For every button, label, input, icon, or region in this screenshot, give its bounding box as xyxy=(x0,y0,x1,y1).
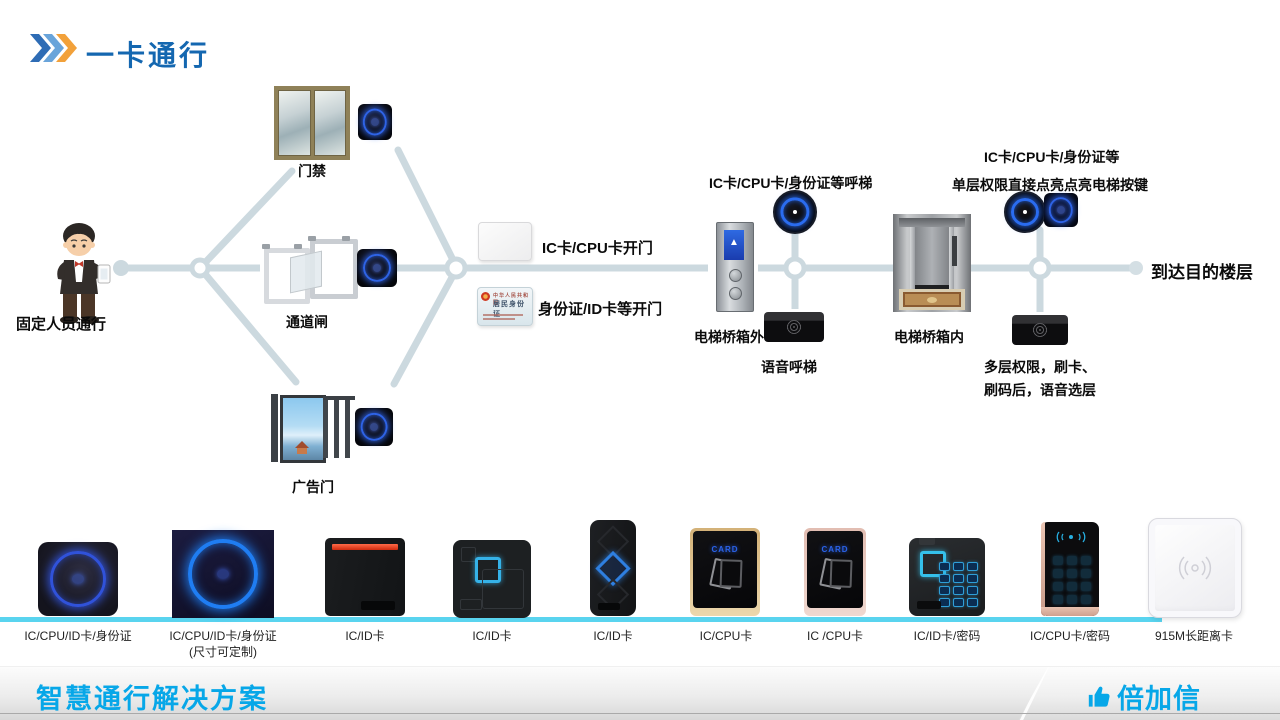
product-label: IC/CPU/ID卡/身份证 xyxy=(148,627,298,644)
card-reader-icon xyxy=(1044,193,1078,227)
ad-gate-label: 广告门 xyxy=(271,477,355,497)
footer-bar: 智慧通行解决方案 倍加信 xyxy=(0,666,1280,720)
round-card-reader-icon xyxy=(773,190,817,234)
reader-product-image: CARD xyxy=(690,528,760,616)
round-card-reader-icon xyxy=(1004,191,1046,233)
id-card-title-text: 居民身份证 xyxy=(493,299,532,319)
reader-product-image xyxy=(172,530,274,618)
brand-name: 倍加信 xyxy=(1117,677,1201,716)
product-label: 915M长距离卡 xyxy=(1119,627,1269,644)
destination-label: 到达目的楼层 xyxy=(1151,258,1253,283)
card-reader-icon xyxy=(358,104,392,140)
product-sublabel: (尺寸可定制) xyxy=(148,643,298,660)
reader-product-image xyxy=(325,538,405,616)
elevator-call-label: IC卡/CPU卡/身份证等呼梯 xyxy=(709,173,872,193)
id-card-image: 中华人民共和国 居民身份证 xyxy=(477,287,533,326)
card-reader-icon xyxy=(355,408,393,446)
brand-logo: 倍加信 xyxy=(1086,677,1201,716)
card-open-label: IC卡/CPU卡开门 xyxy=(542,237,653,258)
ad-gate-image xyxy=(271,392,355,466)
card-screen-text: CARD xyxy=(693,545,757,554)
door-access-label: 门禁 xyxy=(281,161,343,181)
footer-title: 智慧通行解决方案 xyxy=(36,677,268,716)
reader-product-image xyxy=(453,540,531,618)
thumbs-up-icon xyxy=(1086,683,1113,710)
speed-gate-label: 通道闸 xyxy=(265,312,349,332)
outside-label: 电梯桥箱外 xyxy=(694,327,764,347)
rf-waves-icon xyxy=(1051,530,1091,544)
elevator-cab-image xyxy=(893,214,971,312)
reader-product-image xyxy=(1148,518,1242,618)
reader-product-image xyxy=(590,520,636,616)
reader-product-image xyxy=(909,538,985,616)
card-screen-text: CARD xyxy=(807,545,863,554)
card-reader-icon xyxy=(357,249,397,287)
inside-label: 电梯桥箱内 xyxy=(894,327,964,347)
slide: 一卡通行 xyxy=(0,0,1280,720)
reader-product-image xyxy=(1041,522,1099,616)
voice-call-label: 语音呼梯 xyxy=(761,357,817,377)
product-label: IC/CPU/ID卡/身份证 xyxy=(3,627,153,644)
multi-floor-line2: 刷码后，语音选层 xyxy=(984,380,1096,400)
rf-arcs-icon xyxy=(1175,548,1215,588)
chevrons-icon xyxy=(30,34,84,67)
up-arrow-icon: ▲ xyxy=(724,230,744,260)
door-access-image xyxy=(274,86,350,160)
voice-box-image xyxy=(1012,315,1068,345)
page-title: 一卡通行 xyxy=(86,34,210,74)
multi-floor-line1: 多层权限，刷卡、 xyxy=(984,357,1096,377)
reader-product-image: CARD xyxy=(804,528,866,616)
speed-gate-image xyxy=(260,236,354,302)
inside-title-line2: 单层权限直接点亮点亮电梯按键 xyxy=(952,175,1148,195)
elevator-call-panel-image: ▲ xyxy=(708,220,758,312)
id-open-label: 身份证/ID卡等开门 xyxy=(538,298,662,319)
inside-title-line1: IC卡/CPU卡/身份证等 xyxy=(984,147,1119,167)
reader-product-image xyxy=(38,542,118,616)
ic-card-image xyxy=(478,222,532,261)
voice-box-image xyxy=(764,312,824,342)
person-label: 固定人员通行 xyxy=(16,313,106,334)
